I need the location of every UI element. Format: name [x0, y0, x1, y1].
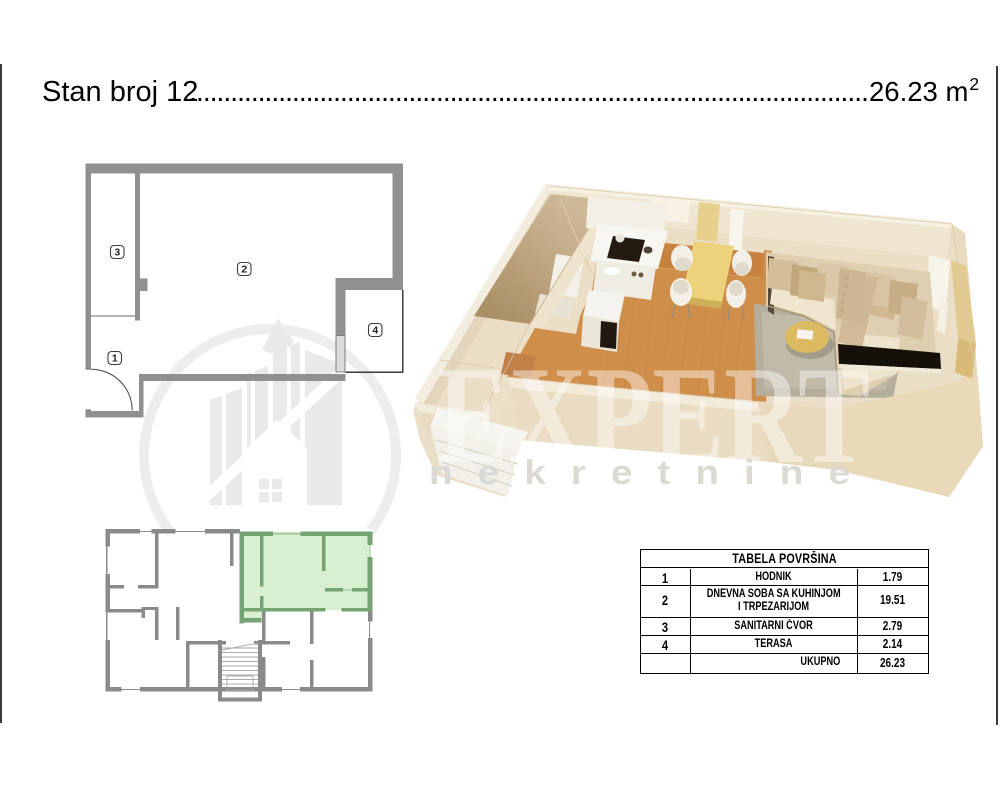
svg-text:2: 2 [241, 264, 247, 276]
svg-text:1: 1 [112, 353, 118, 365]
svg-text:4: 4 [372, 325, 378, 337]
svg-text:3: 3 [114, 247, 120, 259]
svg-text:nekretnine: nekretnine [429, 454, 875, 492]
